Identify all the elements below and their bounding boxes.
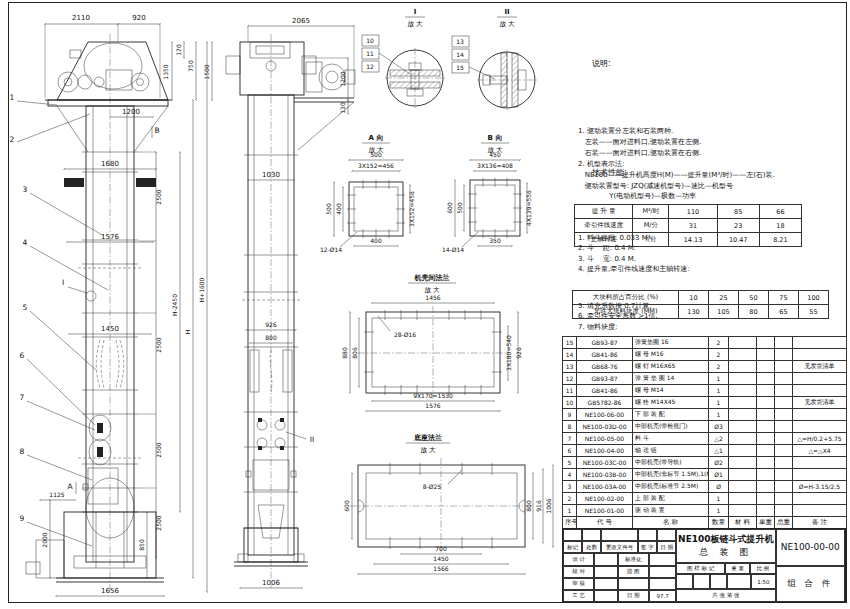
bom-row: 14 GB41-86 螺 母 M16 2 bbox=[563, 349, 847, 361]
bom-material bbox=[729, 361, 757, 373]
rev-h-sign: 签 字 bbox=[638, 541, 657, 553]
bom-total-weight bbox=[775, 337, 793, 349]
bom-total-weight bbox=[775, 493, 793, 505]
lump-size-table: 大块料所占百分比 (%) 10 25 50 75 100 允许大块料块度 (MM… bbox=[572, 290, 829, 319]
rev-h-mark: 标记 bbox=[563, 541, 582, 553]
bom-seq: 1 bbox=[563, 505, 577, 517]
bom-name: 料 斗 bbox=[633, 433, 709, 445]
bom-remark bbox=[793, 337, 847, 349]
label-scale: 比 例 bbox=[750, 563, 775, 574]
perf-label: 主轴转速 bbox=[575, 233, 633, 247]
role-standard: 标准化 bbox=[618, 553, 649, 565]
bom-qty: △2 bbox=[709, 433, 729, 445]
bom-total-weight bbox=[775, 361, 793, 373]
bom-row: 8 NE100-03D-00 中部机壳(带检视门) Ø3 bbox=[563, 421, 847, 433]
bom-unit-weight bbox=[757, 373, 775, 385]
bom-name: 螺 栓 M14X45 bbox=[633, 397, 709, 409]
bom-total-weight bbox=[775, 421, 793, 433]
bom-code: NE100-03B-00 bbox=[577, 469, 633, 481]
perf-label: 提 升 量 bbox=[575, 205, 633, 219]
bom-total-weight bbox=[775, 445, 793, 457]
bom-remark: Ø=H-3.15/2.5 bbox=[793, 481, 847, 493]
bom-material bbox=[729, 421, 757, 433]
perf-unit: r/分 bbox=[633, 233, 669, 247]
bom-material bbox=[729, 457, 757, 469]
perf-value: 66 bbox=[759, 205, 801, 219]
bom-code: NE100-01-00 bbox=[577, 505, 633, 517]
lump-value: 75 bbox=[769, 291, 799, 305]
bom-row: 7 NE100-05-00 料 斗 △2 △=H/0.2+5.75 bbox=[563, 433, 847, 445]
bom-code: NE100-03C-00 bbox=[577, 457, 633, 469]
bom-total-weight bbox=[775, 433, 793, 445]
rev-h-count: 处数 bbox=[582, 541, 601, 553]
bom-code: GB5782-86 bbox=[577, 397, 633, 409]
perf-value: 18 bbox=[759, 219, 801, 233]
lump-value: 80 bbox=[739, 305, 769, 319]
bom-material bbox=[729, 493, 757, 505]
note-line: 1. 驱动装置分左装和右装两种. bbox=[578, 126, 840, 137]
perf-unit: M/分 bbox=[633, 219, 669, 233]
release-date: 97.7 bbox=[649, 590, 676, 602]
bom-name: 驱 动 装 置 bbox=[633, 505, 709, 517]
bom-qty: 1 bbox=[709, 505, 729, 517]
bom-header: 序号 bbox=[563, 517, 577, 529]
bom-code: NE100-04-00 bbox=[577, 445, 633, 457]
bom-remark: 见发货清单 bbox=[793, 361, 847, 373]
lump-value: 105 bbox=[709, 305, 739, 319]
bom-seq: 11 bbox=[563, 385, 577, 397]
bom-qty: 2 bbox=[709, 337, 729, 349]
perf-value: 110 bbox=[669, 205, 717, 219]
sheet-count: 共 张 第 张 bbox=[676, 589, 775, 602]
lump-value: 10 bbox=[679, 291, 709, 305]
lump-value: 130 bbox=[679, 305, 709, 319]
bom-seq: 15 bbox=[563, 337, 577, 349]
perf-value: 8.21 bbox=[759, 233, 801, 247]
bom-header: 备 注 bbox=[793, 517, 847, 529]
bom-header: 材 料 bbox=[729, 517, 757, 529]
bom-code: GB68-76 bbox=[577, 361, 633, 373]
bom-code: GB41-86 bbox=[577, 349, 633, 361]
bom-qty: Ø bbox=[709, 481, 729, 493]
perf-value: 23 bbox=[717, 219, 759, 233]
bom-row: 2 NE100-02-00 上 部 装 配 1 bbox=[563, 493, 847, 505]
performance-row: 提 升 量 M³/时 110 85 66 bbox=[575, 205, 802, 219]
bom-name: 输 送 链 bbox=[633, 445, 709, 457]
bom-code: GB41-86 bbox=[577, 385, 633, 397]
bom-remark bbox=[793, 349, 847, 361]
bom-name: 中部机壳(非标节 1.5M),1(M) bbox=[633, 469, 709, 481]
lump-label: 大块料所占百分比 (%) bbox=[573, 291, 679, 305]
bom-row: 13 GB68-76 螺 钉 M16X65 2 见发货清单 bbox=[563, 361, 847, 373]
bom-seq: 14 bbox=[563, 349, 577, 361]
lump-value: 65 bbox=[769, 305, 799, 319]
bom-name: 上 部 装 配 bbox=[633, 493, 709, 505]
bom-row: 4 NE100-03B-00 中部机壳(非标节 1.5M),1(M) Ø1 bbox=[563, 469, 847, 481]
bom-remark bbox=[793, 457, 847, 469]
bom-total-weight bbox=[775, 505, 793, 517]
bom-material bbox=[729, 409, 757, 421]
bom-row: 9 NE100-06-00 下 部 装 配 1 bbox=[563, 409, 847, 421]
bom-unit-weight bbox=[757, 361, 775, 373]
bom-seq: 6 bbox=[563, 445, 577, 457]
role-trace: 描 图 bbox=[618, 566, 649, 578]
bom-qty: Ø1 bbox=[709, 469, 729, 481]
perf-value: 31 bbox=[669, 219, 717, 233]
bom-material bbox=[729, 349, 757, 361]
bom-material bbox=[729, 481, 757, 493]
bom-remark: 见发货清单 bbox=[793, 397, 847, 409]
bom-remark bbox=[793, 493, 847, 505]
bom-row: 10 GB5782-86 螺 栓 M14X45 1 见发货清单 bbox=[563, 397, 847, 409]
bom-material bbox=[729, 433, 757, 445]
role-date: 日 期 bbox=[618, 590, 649, 602]
bom-seq: 5 bbox=[563, 457, 577, 469]
bom-seq: 9 bbox=[563, 409, 577, 421]
bom-seq: 10 bbox=[563, 397, 577, 409]
bom-name: 弹簧垫圈 16 bbox=[633, 337, 709, 349]
bom-seq: 7 bbox=[563, 433, 577, 445]
lump-value: 25 bbox=[709, 291, 739, 305]
bom-qty: △1 bbox=[709, 445, 729, 457]
bom-header: 总重 bbox=[775, 517, 793, 529]
role-audit: 审 核 bbox=[563, 578, 594, 590]
bom-code: NE100-05-00 bbox=[577, 433, 633, 445]
drawing-sheet: 2110 920 1350 170 750 1500 1200 1680 157… bbox=[0, 0, 850, 609]
lump-row: 允许大块料块度 (MM) 130 105 80 65 55 bbox=[573, 305, 829, 319]
bom-name: 中部机壳(带导轨) bbox=[633, 457, 709, 469]
notes-title: 说明: bbox=[592, 58, 840, 70]
drawing-number: NE100-00-00 bbox=[776, 529, 846, 566]
bom-material bbox=[729, 505, 757, 517]
bom-remark bbox=[793, 373, 847, 385]
bom-seq: 8 bbox=[563, 421, 577, 433]
bom-remark bbox=[793, 469, 847, 481]
bom-total-weight bbox=[775, 385, 793, 397]
bom-row: 11 GB41-86 螺 母 M14 1 bbox=[563, 385, 847, 397]
bom-qty: 1 bbox=[709, 385, 729, 397]
performance-table: 提 升 量 M³/时 110 85 66 牵引件线速度 M/分 31 23 18 bbox=[574, 204, 802, 247]
lump-value: 50 bbox=[739, 291, 769, 305]
lump-label: 允许大块料块度 (MM) bbox=[573, 305, 679, 319]
bom-code: NE100-06-00 bbox=[577, 409, 633, 421]
right-panel: 说明: 1. 驱动装置分左装和右装两种. 左装——面对进料口,驱动装置在左侧. … bbox=[562, 2, 846, 603]
revision-grid: 标记 处数 更改文件号 签 字 日 期 设 计 标准化 校 对 描 图 审 核 bbox=[563, 529, 676, 602]
bom-total-weight bbox=[775, 373, 793, 385]
bom-unit-weight bbox=[757, 457, 775, 469]
bom-unit-weight bbox=[757, 481, 775, 493]
performance-row: 牵引件线速度 M/分 31 23 18 bbox=[575, 219, 802, 233]
bom-unit-weight bbox=[757, 505, 775, 517]
label-drawing-mark: 图 样 标 记 bbox=[676, 563, 725, 574]
title-block: 标记 处数 更改文件号 签 字 日 期 设 计 标准化 校 对 描 图 审 核 bbox=[562, 528, 846, 603]
performance-row: 主轴转速 r/分 14.13 10.47 8.21 bbox=[575, 233, 802, 247]
bom-header-row: 序号 代 号 名 称 数量 材 料 单重 总重 备 注 bbox=[563, 517, 847, 529]
lump-value: 100 bbox=[799, 291, 829, 305]
bom-code: NE100-03D-00 bbox=[577, 421, 633, 433]
bom-qty: 1 bbox=[709, 373, 729, 385]
bom-name: 螺 钉 M16X65 bbox=[633, 361, 709, 373]
bom-material bbox=[729, 337, 757, 349]
rev-h-docno: 更改文件号 bbox=[601, 541, 637, 553]
bom-name: 螺 母 M14 bbox=[633, 385, 709, 397]
bom-seq: 4 bbox=[563, 469, 577, 481]
bom-unit-weight bbox=[757, 385, 775, 397]
bom-row: 5 NE100-03C-00 中部机壳(带导轨) Ø2 bbox=[563, 457, 847, 469]
bom-name: 弹 簧 垫 圈 14 bbox=[633, 373, 709, 385]
bom-row: 15 GB93-87 弹簧垫圈 16 2 bbox=[563, 337, 847, 349]
bom-remark bbox=[793, 409, 847, 421]
bom-qty: 1 bbox=[709, 409, 729, 421]
bom-seq: 3 bbox=[563, 481, 577, 493]
bom-name: 下 部 装 配 bbox=[633, 409, 709, 421]
bom-row: 1 NE100-01-00 驱 动 装 置 1 bbox=[563, 505, 847, 517]
bom-row: 12 GB93-87 弹 簧 垫 圈 14 1 bbox=[563, 373, 847, 385]
bom-qty: Ø3 bbox=[709, 421, 729, 433]
bom-material bbox=[729, 397, 757, 409]
bom-seq: 13 bbox=[563, 361, 577, 373]
perf-label: 牵引件线速度 bbox=[575, 219, 633, 233]
bom-name: 螺 母 M16 bbox=[633, 349, 709, 361]
role-design: 设 计 bbox=[563, 553, 594, 565]
bom-total-weight bbox=[775, 349, 793, 361]
bom-unit-weight bbox=[757, 469, 775, 481]
lump-row: 大块料所占百分比 (%) 10 25 50 75 100 bbox=[573, 291, 829, 305]
bom-qty: Ø2 bbox=[709, 457, 729, 469]
bom-material bbox=[729, 445, 757, 457]
bom-remark: △=△X4 bbox=[793, 445, 847, 457]
role-process: 工 艺 bbox=[563, 590, 594, 602]
bom-row: 6 NE100-04-00 输 送 链 △1 △=△X4 bbox=[563, 445, 847, 457]
bom-code: NE100-03A-00 bbox=[577, 481, 633, 493]
bom-unit-weight bbox=[757, 397, 775, 409]
bill-of-materials: 15 GB93-87 弹簧垫圈 16 2 14 GB41-86 螺 母 M16 bbox=[562, 336, 847, 529]
bom-code: NE100-02-00 bbox=[577, 493, 633, 505]
bom-seq: 12 bbox=[563, 373, 577, 385]
scale-value: 1:50 bbox=[751, 574, 775, 589]
bom-header: 代 号 bbox=[577, 517, 633, 529]
perf-value: 14.13 bbox=[669, 233, 717, 247]
perf-value: 85 bbox=[717, 205, 759, 219]
perf-value: 10.47 bbox=[717, 233, 759, 247]
bom-remark bbox=[793, 421, 847, 433]
bom-total-weight bbox=[775, 409, 793, 421]
bom-material bbox=[729, 385, 757, 397]
bom-remark: △=H/0.2+5.75 bbox=[793, 433, 847, 445]
bom-unit-weight bbox=[757, 409, 775, 421]
bom-unit-weight bbox=[757, 421, 775, 433]
bom-material bbox=[729, 373, 757, 385]
bom-header: 数量 bbox=[709, 517, 729, 529]
bom-code: GB93-87 bbox=[577, 373, 633, 385]
title-right: NE100-00-00 组 合 件 bbox=[776, 529, 846, 602]
lump-value: 55 bbox=[799, 305, 829, 319]
bom-unit-weight bbox=[757, 445, 775, 457]
role-check: 校 对 bbox=[563, 566, 594, 578]
bom-total-weight bbox=[775, 397, 793, 409]
bom-row: 3 NE100-03A-00 中部机壳(标准节 2.5M) Ø Ø=H-3.15… bbox=[563, 481, 847, 493]
sheet-name: 总 装 图 bbox=[699, 546, 752, 559]
bom-unit-weight bbox=[757, 433, 775, 445]
bom-qty: 2 bbox=[709, 349, 729, 361]
tech-title: 技术性能: bbox=[592, 167, 840, 179]
bom-remark bbox=[793, 385, 847, 397]
bom-material bbox=[729, 469, 757, 481]
rev-h-date: 日 期 bbox=[657, 541, 676, 553]
bom-qty: 2 bbox=[709, 361, 729, 373]
bom-unit-weight bbox=[757, 349, 775, 361]
bom-name: 中部机壳(带检视门) bbox=[633, 421, 709, 433]
product-name: NE100板链斗式提升机 bbox=[678, 533, 773, 546]
bom-name: 中部机壳(标准节 2.5M) bbox=[633, 481, 709, 493]
label-weight: 重 量 bbox=[725, 563, 750, 574]
bom-qty: 1 bbox=[709, 493, 729, 505]
role-blank bbox=[618, 578, 649, 590]
perf-unit: M³/时 bbox=[633, 205, 669, 219]
bom-total-weight bbox=[775, 457, 793, 469]
bom-qty: 1 bbox=[709, 397, 729, 409]
bom-total-weight bbox=[775, 481, 793, 493]
bom-header: 名 称 bbox=[633, 517, 709, 529]
part-class: 组 合 件 bbox=[776, 566, 846, 603]
tech-line: 7. 物料块度: bbox=[578, 322, 840, 333]
bom-code: GB93-87 bbox=[577, 337, 633, 349]
bom-header: 单重 bbox=[757, 517, 775, 529]
bom-unit-weight bbox=[757, 337, 775, 349]
bom-unit-weight bbox=[757, 493, 775, 505]
title-center: NE100板链斗式提升机 总 装 图 图 样 标 记 重 量 比 例 1:50 … bbox=[676, 529, 775, 602]
bom-total-weight bbox=[775, 469, 793, 481]
bom-seq: 2 bbox=[563, 493, 577, 505]
bom-remark bbox=[793, 505, 847, 517]
